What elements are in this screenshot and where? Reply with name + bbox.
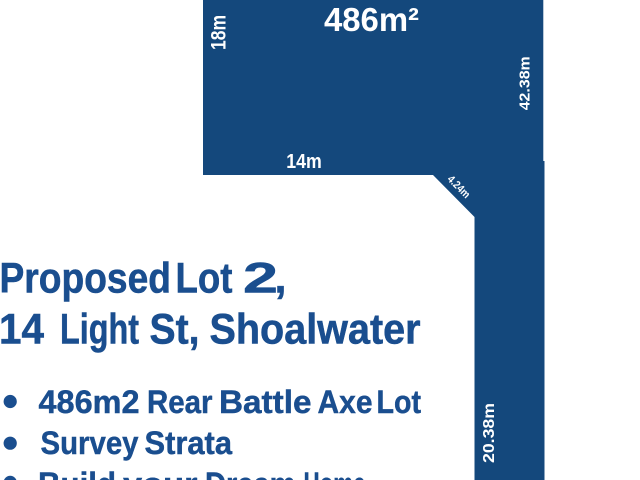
svg-text:486m2: 486m2 <box>39 384 140 420</box>
svg-text:Home: Home <box>304 466 366 480</box>
svg-text:,: , <box>275 255 287 303</box>
svg-text:Battle: Battle <box>219 384 312 420</box>
svg-text:Lot: Lot <box>176 255 233 303</box>
svg-text:Proposed: Proposed <box>0 255 171 303</box>
svg-text:Rear: Rear <box>147 384 213 420</box>
svg-text:20.38m: 20.38m <box>481 403 498 463</box>
svg-text:Shoalwater: Shoalwater <box>210 306 421 354</box>
svg-text:your: your <box>123 466 198 480</box>
svg-text:St,: St, <box>150 306 200 354</box>
svg-text:Strata: Strata <box>145 425 233 461</box>
svg-text:Light: Light <box>60 306 139 354</box>
svg-text:Axe: Axe <box>318 384 373 420</box>
svg-text:Build: Build <box>38 466 116 480</box>
svg-text:14m: 14m <box>286 150 322 173</box>
svg-text:2: 2 <box>243 255 278 303</box>
svg-text:486m²: 486m² <box>324 1 419 38</box>
svg-text:42.38m: 42.38m <box>517 56 534 110</box>
svg-text:18m: 18m <box>207 15 231 50</box>
svg-text:Lot: Lot <box>377 384 422 420</box>
svg-text:Survey: Survey <box>41 425 139 461</box>
svg-text:Dream: Dream <box>205 466 296 480</box>
svg-text:14: 14 <box>0 306 44 354</box>
